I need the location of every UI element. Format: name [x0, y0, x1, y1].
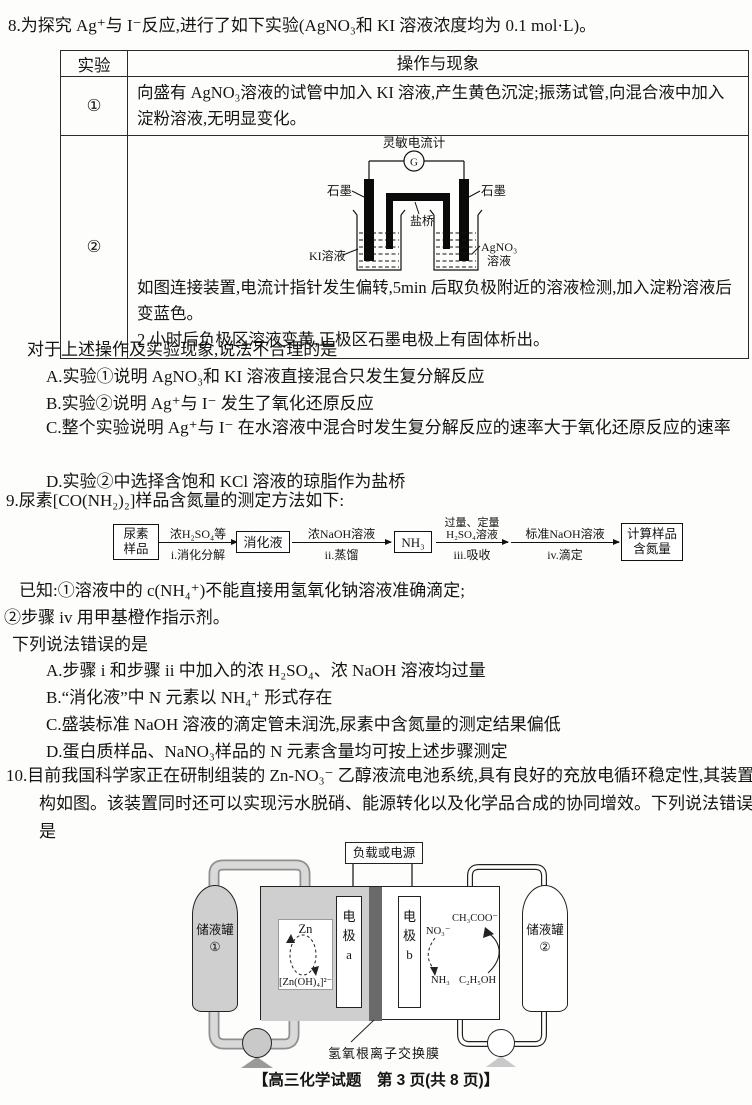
- load-or-power-box: 负载或电源: [345, 842, 423, 864]
- salt-bridge-pointer: [415, 202, 419, 214]
- flow-box4-line1: 计算样品: [622, 527, 682, 542]
- battery-cell: Zn [Zn(OH)₄]²⁻ 电极a 电极b NO₃⁻ CH₃COO⁻ NH₃ …: [260, 886, 500, 1020]
- electrode-b-label: 电极b: [403, 907, 417, 964]
- flow-box-urea-sample: 尿素 样品: [113, 524, 159, 560]
- flow-arrow-1: 浓H₂SO₄等 i.消化分解: [159, 514, 237, 570]
- zn-label: Zn: [279, 922, 332, 937]
- arrow1-reagent: 浓H₂SO₄等: [170, 528, 226, 541]
- table-row-2: ② 灵敏电流计 G 石墨 石墨: [61, 135, 748, 358]
- liquid-hatch-right: [436, 233, 476, 267]
- graphite-label-left: 石墨: [327, 184, 352, 198]
- table-row-1: ① 向盛有 AgNO₃溶液的试管中加入 KI 溶液,产生黄色沉淀;振荡试管,向混…: [61, 76, 748, 135]
- flow-box-nh3: NH₃: [394, 531, 432, 553]
- flow-box4-line2: 含氮量: [622, 542, 682, 557]
- agno3-label-line2: 溶液: [487, 253, 511, 268]
- tank2-label: 储液罐: [523, 922, 567, 939]
- arrow4-line: [511, 542, 619, 543]
- q8-option-b: B.实验②说明 Ag⁺与 I⁻ 发生了氧化还原反应: [46, 390, 374, 417]
- galvanic-cell-diagram: 灵敏电流计 G 石墨 石墨 盐桥: [128, 136, 748, 274]
- q9-option-b: B.“消化液”中 N 元素以 NH₄⁺ 形式存在: [46, 684, 332, 711]
- arrow3-step: iii.吸收: [453, 546, 490, 563]
- arrow3-reagent-line1: 过量、定量: [445, 517, 500, 529]
- storage-tank-2: 储液罐 ②: [522, 885, 568, 1012]
- graphite-right-pointer: [469, 191, 480, 197]
- header-experiment: 实验: [61, 51, 128, 76]
- graphite-electrode-right: [459, 179, 469, 261]
- storage-tank-1: 储液罐 ①: [192, 885, 238, 1012]
- q9-option-a: A.步骤 i 和步骤 ii 中加入的浓 H₂SO₄、浓 NaOH 溶液均过量: [46, 657, 486, 684]
- table-header-row: 实验 操作与现象: [61, 51, 748, 76]
- arrow4-reagent: 标准NaOH溶液: [525, 528, 604, 541]
- arrow3-reagent-line2: H₂SO₄溶液: [446, 529, 498, 541]
- q9-prompt: 下列说法错误的是: [12, 631, 148, 658]
- electrode-a: 电极a: [336, 896, 362, 1008]
- agno3-label-line1: AgNO₃: [481, 240, 517, 254]
- galvanometer-symbol: G: [410, 157, 418, 169]
- galvanometer-label: 灵敏电流计: [383, 136, 446, 150]
- flow-arrow-2: 浓NaOH溶液 ii.蒸馏: [292, 514, 391, 570]
- arrow1-line: [159, 542, 237, 543]
- tank1-number: ①: [193, 939, 237, 956]
- q10-stem: 10.目前我国科学家正在研制组装的 Zn-NO₃⁻ 乙醇液流电池系统,具有良好的…: [6, 762, 752, 846]
- arrow2-reagent: 浓NaOH溶液: [308, 528, 375, 541]
- q9-stem: 9.尿素[CO(NH₂)₂]样品含氮量的测定方法如下:: [6, 487, 344, 514]
- pump-left: [242, 1028, 272, 1058]
- graphite-left-pointer: [352, 191, 364, 197]
- flow-arrow-4: 标准NaOH溶液 iv.滴定: [511, 514, 619, 570]
- ion-exchange-membrane: [369, 887, 382, 1021]
- tank1-label: 储液罐: [193, 922, 237, 939]
- row1-text: 向盛有 AgNO₃溶液的试管中加入 KI 溶液,产生黄色沉淀;振荡试管,向混合液…: [128, 77, 748, 135]
- zinc-cycle-box: Zn [Zn(OH)₄]²⁻: [278, 919, 333, 990]
- graphite-electrode-left: [364, 179, 374, 261]
- row1-label: ①: [61, 77, 128, 135]
- flow-box-result: 计算样品 含氮量: [621, 523, 683, 561]
- graphite-label-right: 石墨: [481, 184, 506, 198]
- q8-prompt: 对于上述操作及实验现象,说法不合理的是: [27, 336, 337, 363]
- zincate-label: [Zn(OH)₄]²⁻: [279, 976, 332, 988]
- electrode-a-label: 电极a: [342, 907, 356, 964]
- acetate-label: CH₃COO⁻: [452, 912, 498, 924]
- q9-known-1: 已知:①溶液中的 c(NH₄⁺)不能直接用氢氧化钠溶液准确滴定;: [19, 577, 465, 604]
- q8-experiment-table: 实验 操作与现象 ① 向盛有 AgNO₃溶液的试管中加入 KI 溶液,产生黄色沉…: [60, 50, 749, 359]
- tank2-number: ②: [523, 939, 567, 956]
- flow-arrow-3: 过量、定量 H₂SO₄溶液 iii.吸收: [436, 514, 508, 570]
- flow-battery-diagram: 负载或电源 储液罐 ① 储液罐 ② Zn [Zn(OH)₄]²⁻ 电极a: [170, 840, 590, 1075]
- pump-right: [487, 1029, 515, 1057]
- q8-stem: 8.为探究 Ag⁺与 I⁻反应,进行了如下实验(AgNO₃和 KI 溶液浓度均为…: [8, 12, 596, 39]
- q8-option-a: A.实验①说明 AgNO₃和 KI 溶液直接混合只发生复分解反应: [46, 363, 484, 390]
- arrow3-line: [436, 542, 508, 543]
- ammonia-label: NH₃: [431, 975, 450, 986]
- page-footer: 【高三化学试题 第 3 页(共 8 页)】: [0, 1068, 752, 1090]
- arrow2-line: [292, 542, 391, 543]
- header-operation: 操作与现象: [128, 51, 748, 76]
- row2-caption-line1: 如图连接装置,电流计指针发生偏转,5min 后取负极附近的溶液检测,加入淀粉溶液…: [137, 275, 739, 327]
- ethanol-label: C₂H₅OH: [459, 975, 496, 986]
- arrow2-step: ii.蒸馏: [325, 546, 359, 563]
- flow-box1-line2: 样品: [114, 542, 158, 557]
- q9-option-d: D.蛋白质样品、NaNO₃样品的 N 元素含量均可按上述步骤测定: [46, 738, 508, 765]
- salt-bridge-label: 盐桥: [410, 214, 434, 228]
- tube-right-top-outline: [470, 867, 544, 887]
- cell-diagram-svg: 灵敏电流计 G 石墨 石墨 盐桥: [282, 136, 562, 274]
- q9-option-c: C.盛装标准 NaOH 溶液的滴定管未润洗,尿素中含氮量的测定结果偏低: [46, 711, 561, 738]
- row2-label: ②: [61, 136, 128, 358]
- electrode-b: 电极b: [398, 896, 421, 1008]
- nitrate-label: NO₃⁻: [426, 925, 450, 937]
- q8-option-c: C.整个实验说明 Ag⁺与 I⁻ 在水溶液中混合时发生复分解反应的速率大于氧化还…: [46, 414, 752, 441]
- flow-box1-line1: 尿素: [114, 527, 158, 542]
- q9-known-2: ②步骤 iv 用甲基橙作指示剂。: [4, 604, 230, 631]
- arrow4-step: iv.滴定: [547, 546, 583, 563]
- exam-page: 8.为探究 Ag⁺与 I⁻反应,进行了如下实验(AgNO₃和 KI 溶液浓度均为…: [0, 0, 752, 1105]
- flow-box-digest: 消化液: [236, 531, 290, 553]
- membrane-label: 氢氧根离子交换膜: [328, 1043, 440, 1062]
- ki-solution-label: KI溶液: [309, 248, 346, 263]
- arrow1-step: i.消化分解: [171, 546, 225, 563]
